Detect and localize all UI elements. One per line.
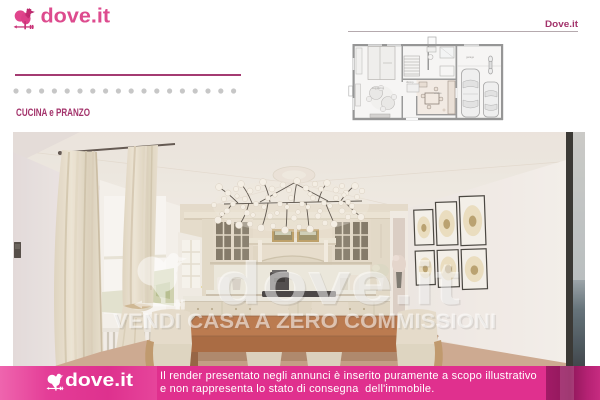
svg-text:dove.it: dove.it — [41, 6, 111, 28]
svg-text:CUCINA e PRANZO: CUCINA e PRANZO — [16, 107, 90, 119]
svg-text:cucina: cucina — [434, 91, 442, 95]
svg-text:VENDI CASA A ZERO COMMISSIONI: VENDI CASA A ZERO COMMISSIONI — [113, 310, 496, 333]
svg-text:dove.it: dove.it — [215, 250, 460, 317]
svg-text:garage: garage — [466, 55, 475, 59]
svg-text:dove.it: dove.it — [65, 370, 133, 390]
svg-text:disimp.: disimp. — [406, 80, 414, 84]
svg-text:Dove.it: Dove.it — [545, 19, 579, 30]
svg-text:soggiorno: soggiorno — [372, 86, 384, 90]
